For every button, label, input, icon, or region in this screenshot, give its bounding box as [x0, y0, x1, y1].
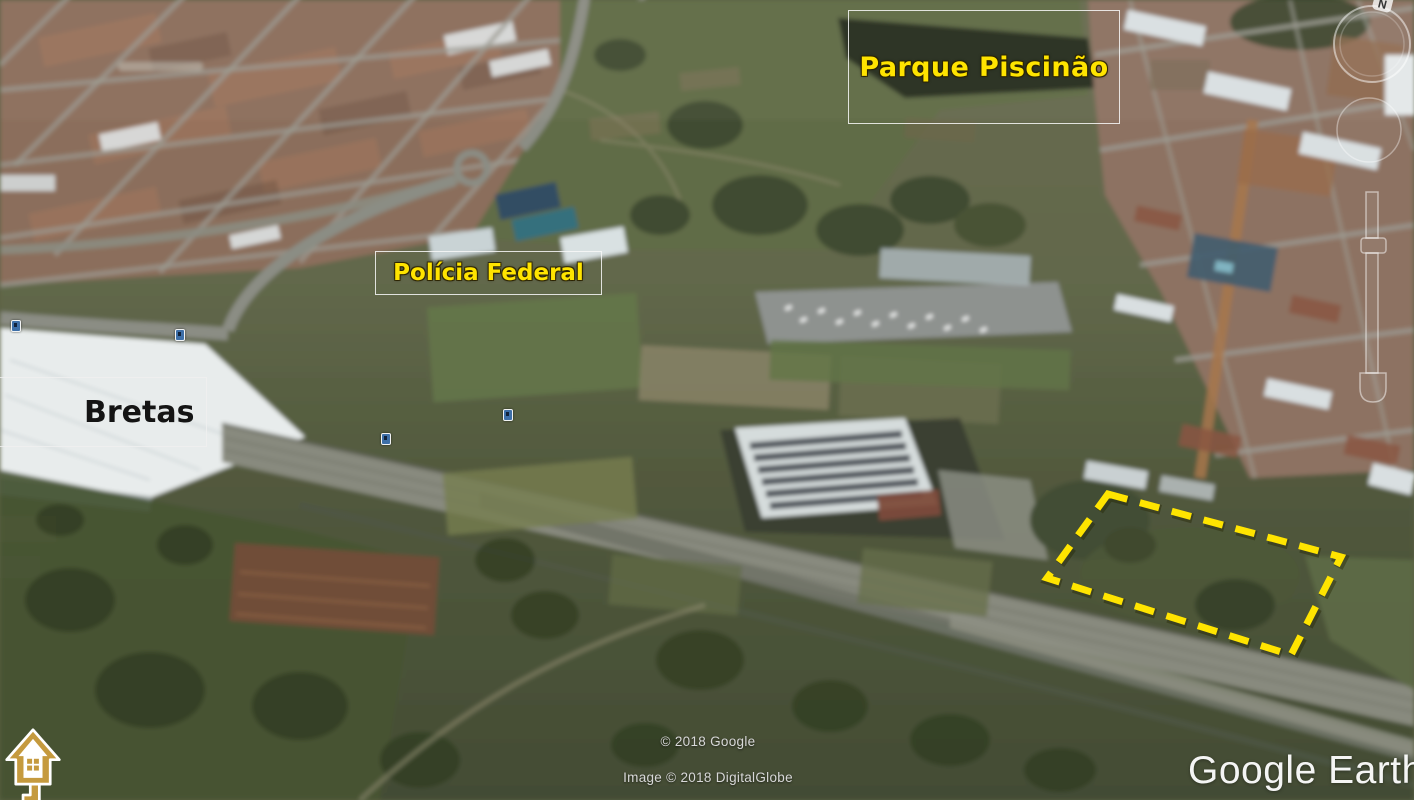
map-label-bretas-text: Bretas: [84, 395, 194, 430]
photo-marker[interactable]: [175, 329, 185, 341]
imagery-attribution: Image © 2018 DigitalGlobe: [508, 770, 908, 785]
zoom-in-button[interactable]: [1361, 238, 1386, 253]
key-shaft: [23, 784, 39, 800]
map-label-parque-piscinao: Parque Piscinão: [848, 10, 1120, 124]
map-label-policia-federal-text: Polícia Federal: [393, 260, 584, 286]
map-label-bretas: Bretas: [0, 377, 207, 447]
zoom-slider-stem: [1366, 192, 1378, 238]
google-earth-logo: Google Earth: [1188, 749, 1414, 793]
copyright-attribution: © 2018 Google: [508, 734, 908, 749]
zoom-slider[interactable]: [1360, 192, 1386, 402]
photo-marker[interactable]: [503, 409, 513, 421]
terrain-art: [0, 0, 1414, 800]
look-joystick[interactable]: [1337, 98, 1401, 162]
zoom-slider-track[interactable]: [1366, 253, 1378, 373]
house-key-icon: [4, 726, 62, 800]
navigation-controls: N: [1316, 0, 1414, 420]
zoom-out-button[interactable]: [1360, 373, 1386, 402]
google-earth-viewport[interactable]: Parque Piscinão Polícia Federal Bretas N…: [0, 0, 1414, 800]
map-label-policia-federal: Polícia Federal: [375, 251, 602, 295]
photo-marker[interactable]: [381, 433, 391, 445]
compass-control[interactable]: N: [1334, 0, 1410, 82]
photo-marker[interactable]: [11, 320, 21, 332]
aerial-imagery: [0, 0, 1414, 800]
map-label-parque-piscinao-text: Parque Piscinão: [859, 52, 1108, 83]
